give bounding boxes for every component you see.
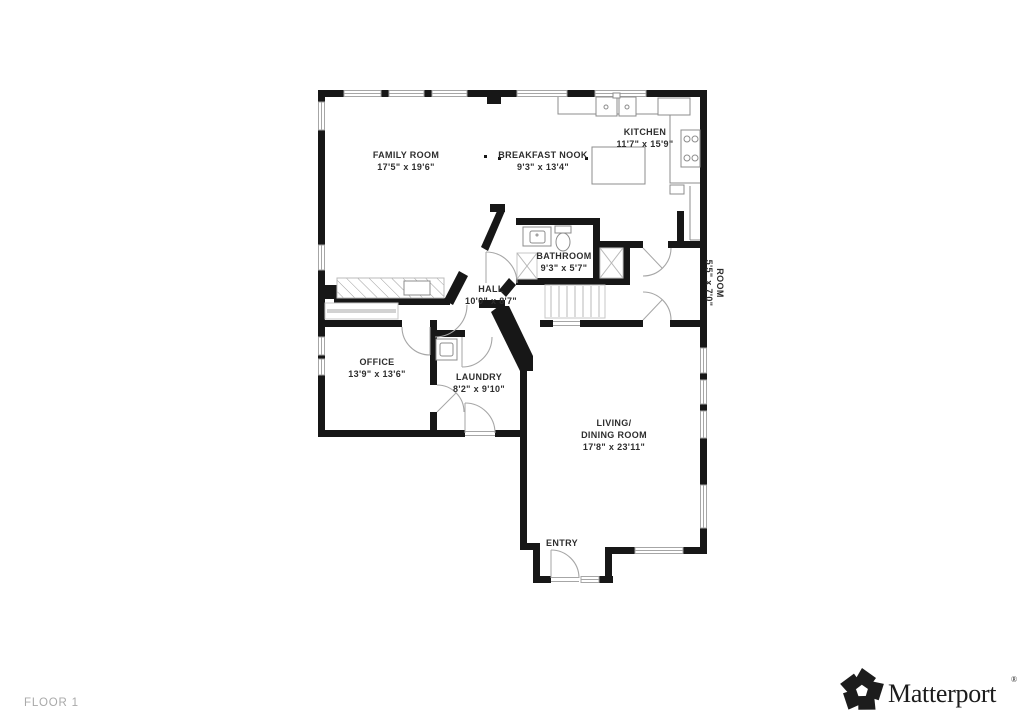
floor-label: FLOOR 1 bbox=[24, 697, 79, 709]
side-room-dims: 5'5" x 7'0" bbox=[704, 260, 714, 307]
toilet-icon bbox=[555, 226, 571, 251]
floorplan-svg: FAMILY ROOM 17'5" x 19'6" BREAKFAST NOOK… bbox=[0, 0, 1024, 724]
floorplan-page: FAMILY ROOM 17'5" x 19'6" BREAKFAST NOOK… bbox=[0, 0, 1024, 724]
bathroom-label: BATHROOM bbox=[536, 251, 591, 261]
stairs bbox=[545, 285, 605, 318]
entry-label: ENTRY bbox=[546, 538, 578, 548]
fridge-icon bbox=[658, 98, 690, 115]
kitchen-label: KITCHEN bbox=[624, 127, 666, 137]
matterport-pinwheel-icon bbox=[837, 668, 888, 718]
office-label: OFFICE bbox=[359, 357, 394, 367]
closet-x bbox=[600, 248, 623, 278]
breakfast-nook-label: BREAKFAST NOOK bbox=[498, 150, 588, 160]
office-dims: 13'9" x 13'6" bbox=[348, 369, 405, 379]
hatched-stair-area bbox=[337, 278, 444, 298]
family-room-dims: 17'5" x 19'6" bbox=[377, 162, 434, 172]
laundry-dims: 8'2" x 9'10" bbox=[453, 384, 505, 394]
registered-mark: ® bbox=[1011, 675, 1017, 684]
matterport-logo: Matterport ® bbox=[837, 668, 1017, 718]
breakfast-nook-dims: 9'3" x 13'4" bbox=[517, 162, 569, 172]
bathroom-vanity-icon bbox=[523, 227, 551, 246]
laundry-label: LAUNDRY bbox=[456, 372, 502, 382]
living-dining-label-2: DINING ROOM bbox=[581, 430, 647, 440]
kitchen-dims: 11'7" x 15'9" bbox=[617, 139, 674, 149]
hall-label: HALL bbox=[478, 284, 504, 294]
kitchen-island bbox=[592, 147, 645, 184]
family-room-label: FAMILY ROOM bbox=[373, 150, 439, 160]
side-room-label: ROOM bbox=[715, 268, 725, 297]
living-dining-dims: 17'8" x 23'11" bbox=[583, 442, 645, 452]
matterport-wordmark: Matterport bbox=[888, 679, 997, 708]
living-dining-label-1: LIVING/ bbox=[597, 418, 632, 428]
stove-icon bbox=[681, 130, 700, 167]
room-labels: FAMILY ROOM 17'5" x 19'6" BREAKFAST NOOK… bbox=[348, 127, 725, 548]
hall-dims: 10'0" x 8'7" bbox=[465, 296, 517, 306]
bathroom-closet-x bbox=[517, 253, 537, 279]
hall-closet bbox=[325, 303, 398, 319]
side-room-label-group: ROOM 5'5" x 7'0" bbox=[704, 260, 725, 307]
laundry-sink-icon bbox=[436, 339, 457, 360]
bathroom-dims: 9'3" x 5'7" bbox=[541, 263, 588, 273]
